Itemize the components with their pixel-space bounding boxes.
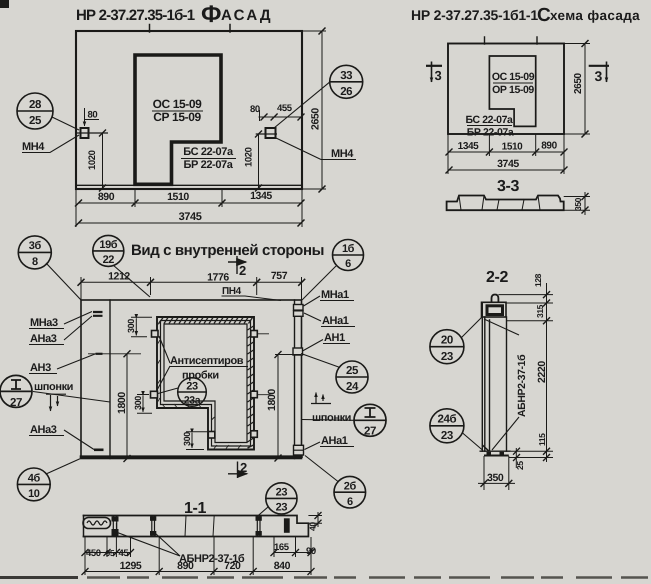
svg-text:Ф: Ф (201, 1, 221, 28)
svg-text:МН4: МН4 (22, 141, 45, 153)
svg-text:23: 23 (441, 351, 453, 363)
svg-text:АБНР2-37-1б: АБНР2-37-1б (516, 354, 528, 417)
svg-text:АНа3: АНа3 (30, 424, 57, 436)
svg-text:25: 25 (29, 115, 42, 127)
svg-text:АН1: АН1 (324, 332, 345, 344)
svg-text:300: 300 (133, 396, 143, 410)
svg-text:840: 840 (274, 560, 291, 572)
svg-text:БР 22-07а: БР 22-07а (184, 159, 234, 171)
svg-text:2220: 2220 (536, 361, 548, 383)
svg-text:315: 315 (535, 304, 545, 318)
svg-text:8: 8 (32, 256, 38, 268)
svg-text:Антисептиров: Антисептиров (170, 355, 244, 367)
svg-text:БС 22-07а: БС 22-07а (183, 146, 234, 158)
svg-text:НР 2-37.27.35-1б-1: НР 2-37.27.35-1б-1 (76, 7, 195, 24)
svg-text:3-3: 3-3 (497, 178, 519, 195)
svg-text:95: 95 (106, 548, 115, 558)
svg-text:300: 300 (182, 432, 192, 446)
svg-text:МН4: МН4 (331, 148, 354, 160)
svg-text:19б: 19б (99, 239, 117, 251)
svg-text:90: 90 (306, 546, 316, 557)
svg-text:1295: 1295 (120, 560, 142, 572)
svg-text:1510: 1510 (167, 191, 189, 203)
svg-text:3б: 3б (29, 240, 42, 252)
svg-text:23: 23 (186, 381, 198, 393)
svg-text:80: 80 (88, 110, 98, 121)
svg-text:АНа3: АНа3 (30, 333, 57, 345)
svg-text:115: 115 (537, 433, 547, 446)
svg-text:27: 27 (364, 426, 376, 438)
svg-text:Вид с внутренней стороны: Вид с внутренней стороны (131, 242, 324, 259)
svg-text:3: 3 (435, 68, 442, 83)
svg-text:22: 22 (103, 254, 115, 266)
svg-text:128: 128 (533, 273, 543, 287)
svg-text:27: 27 (10, 397, 22, 409)
svg-text:2-2: 2-2 (486, 269, 508, 286)
svg-text:1212: 1212 (108, 271, 130, 283)
svg-text:23: 23 (276, 487, 288, 499)
svg-text:АН3: АН3 (30, 362, 51, 374)
svg-text:350: 350 (487, 472, 504, 484)
svg-text:ПН4: ПН4 (222, 286, 242, 297)
svg-text:ОС 15-09: ОС 15-09 (153, 97, 203, 111)
svg-text:165: 165 (274, 542, 290, 553)
svg-text:455: 455 (277, 103, 293, 114)
svg-text:ОС 15-09: ОС 15-09 (492, 71, 535, 83)
svg-text:26: 26 (340, 86, 352, 98)
svg-text:23: 23 (276, 502, 288, 514)
svg-text:25: 25 (346, 365, 359, 377)
svg-text:80: 80 (250, 104, 260, 115)
svg-text:757: 757 (271, 270, 288, 282)
svg-text:АНа1: АНа1 (322, 315, 349, 327)
svg-text:СР 15-09: СР 15-09 (153, 110, 201, 124)
svg-text:АБНР2-37-1б: АБНР2-37-1б (179, 553, 245, 565)
svg-text:45: 45 (119, 548, 130, 559)
svg-text:890: 890 (541, 141, 557, 152)
svg-text:10: 10 (28, 488, 40, 500)
svg-text:25: 25 (515, 461, 525, 470)
svg-text:1-1: 1-1 (184, 500, 206, 517)
svg-text:890: 890 (98, 191, 115, 203)
svg-text:23а: 23а (184, 395, 201, 407)
svg-text:300: 300 (126, 319, 136, 333)
svg-text:20: 20 (441, 335, 453, 347)
svg-text:шпонки: шпонки (34, 381, 73, 393)
svg-text:4б: 4б (28, 473, 41, 485)
svg-text:ОР 15-09: ОР 15-09 (492, 84, 534, 96)
svg-text:2650: 2650 (310, 108, 322, 130)
svg-text:40: 40 (308, 522, 318, 531)
svg-text:24: 24 (346, 381, 359, 393)
svg-text:3745: 3745 (497, 158, 519, 170)
svg-text:1345: 1345 (458, 141, 479, 152)
svg-text:2: 2 (239, 263, 246, 278)
svg-text:хема фасада: хема фасада (550, 8, 640, 23)
svg-text:1800: 1800 (116, 392, 128, 414)
svg-text:2650: 2650 (573, 73, 584, 94)
svg-text:НР 2-37.27.35-1б1-1: НР 2-37.27.35-1б1-1 (411, 7, 538, 23)
svg-text:БР 22-07а: БР 22-07а (467, 127, 514, 139)
svg-text:АСАД: АСАД (221, 7, 273, 24)
svg-text:28: 28 (29, 99, 42, 111)
svg-text:1800: 1800 (266, 389, 278, 411)
svg-text:6: 6 (345, 258, 351, 270)
svg-text:24б: 24б (438, 414, 457, 426)
svg-text:1020: 1020 (87, 150, 98, 170)
svg-text:С: С (537, 5, 551, 26)
svg-text:1345: 1345 (250, 190, 272, 202)
svg-text:1510: 1510 (502, 142, 523, 153)
svg-text:МНа1: МНа1 (321, 289, 349, 301)
svg-text:3: 3 (595, 68, 603, 84)
svg-text:2: 2 (240, 460, 247, 475)
svg-text:2б: 2б (344, 481, 357, 493)
svg-text:1020: 1020 (244, 147, 255, 167)
svg-text:450: 450 (86, 548, 101, 559)
svg-text:БС 22-07а: БС 22-07а (465, 114, 513, 126)
svg-text:33: 33 (340, 70, 352, 82)
svg-text:1б: 1б (342, 243, 355, 255)
svg-text:3745: 3745 (179, 211, 202, 223)
svg-text:1776: 1776 (207, 272, 229, 284)
svg-text:АНа1: АНа1 (321, 435, 348, 447)
svg-text:23: 23 (441, 430, 453, 442)
svg-text:6: 6 (347, 496, 353, 508)
svg-text:шпонки: шпонки (312, 412, 351, 424)
svg-text:350: 350 (573, 197, 583, 211)
svg-text:МНа3: МНа3 (30, 317, 58, 329)
